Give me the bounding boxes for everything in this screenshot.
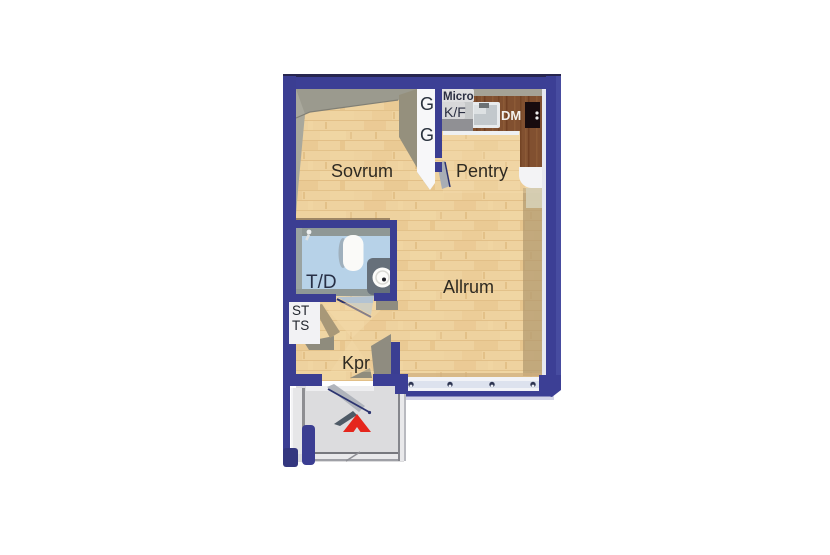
svg-text:DM: DM [501, 108, 521, 123]
svg-text:G: G [420, 94, 434, 114]
svg-text:T/D: T/D [306, 272, 337, 293]
svg-text:Sovrum: Sovrum [331, 161, 393, 181]
svg-text:Micro: Micro [443, 91, 474, 103]
svg-text:Kpr: Kpr [342, 353, 370, 373]
svg-text:Pentry: Pentry [456, 161, 508, 181]
svg-text:K/F: K/F [444, 104, 466, 120]
svg-text:Allrum: Allrum [443, 277, 494, 297]
svg-text:TS: TS [292, 318, 309, 333]
svg-text:ST: ST [292, 303, 309, 318]
svg-text:G: G [420, 125, 434, 145]
